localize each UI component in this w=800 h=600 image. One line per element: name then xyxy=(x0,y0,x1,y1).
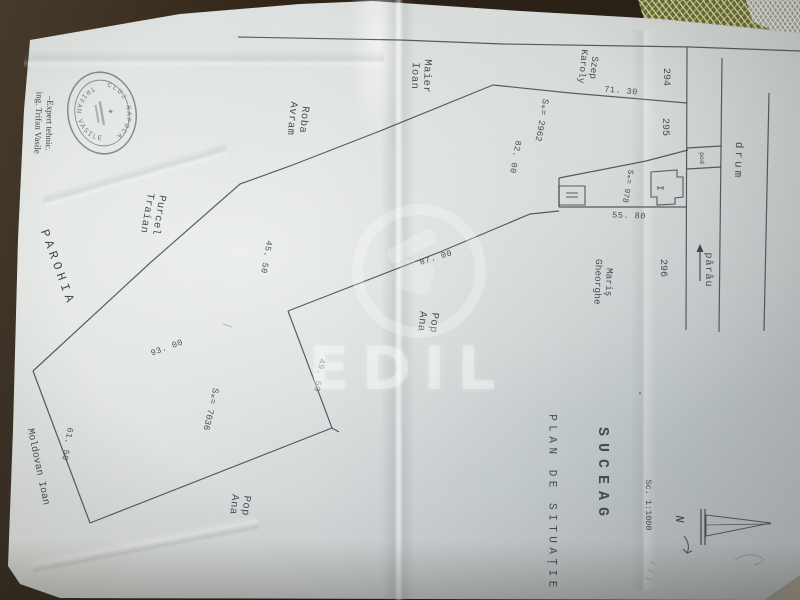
north-label: N xyxy=(672,515,686,523)
road-line-west xyxy=(686,47,687,330)
pencil-marks xyxy=(223,324,763,565)
owner-label-maier-ioan: MaierIoan xyxy=(407,59,433,94)
owner-label-szep-karoly: SzepKaroly xyxy=(575,49,601,85)
lot-number-294: 294 xyxy=(659,68,671,86)
lot-number-296: 296 xyxy=(656,259,668,277)
road-label: drum xyxy=(730,142,744,181)
plan-drawing: N I CLUJ-NAPOCA TRIFAN VASILE ✶ xyxy=(0,0,800,600)
building-annex xyxy=(559,186,585,205)
owner-label-maris-gheorghe: MarişGheorghe xyxy=(591,259,615,305)
stamp-star: ✶ xyxy=(104,108,115,116)
building-main-label: I xyxy=(655,185,665,190)
lot-number-295: 295 xyxy=(658,118,670,136)
stamp-ring-bottom-text: TRIFAN VASILE xyxy=(69,84,105,148)
round-stamp: CLUJ-NAPOCA TRIFAN VASILE ✶ xyxy=(61,67,142,160)
dimension-55-80: 55. 80 xyxy=(612,210,646,221)
owner-label-pop-ana-south: PopAna xyxy=(226,494,253,517)
parcel-east-boundary xyxy=(288,311,332,428)
parcel-south-boundary xyxy=(90,428,339,523)
lot-divider-line xyxy=(493,85,687,103)
svg-text:TRIFAN VASILE: TRIFAN VASILE xyxy=(69,84,105,148)
title-scale: Sc. 1:1000 xyxy=(643,479,653,530)
expert-signature: –Expert tehnic. ing. Trifan Vasile xyxy=(32,92,55,155)
title-locality: SUCEAG xyxy=(593,427,611,523)
owner-label-pop-ana-center: PopAna xyxy=(414,311,441,334)
bridge-label: pod xyxy=(697,152,705,164)
stream-label: pârâu xyxy=(701,252,713,287)
road-line-east xyxy=(719,58,722,332)
north-arrow: N xyxy=(672,509,771,553)
title-plan: PLAN DE SITUAȚIE xyxy=(545,414,558,592)
stream-line xyxy=(764,93,769,331)
owner-label-roba-avram: RobaAvram xyxy=(283,101,311,137)
north-frame-line xyxy=(238,37,800,51)
photo-background: N I CLUJ-NAPOCA TRIFAN VASILE ✶ xyxy=(0,0,800,600)
